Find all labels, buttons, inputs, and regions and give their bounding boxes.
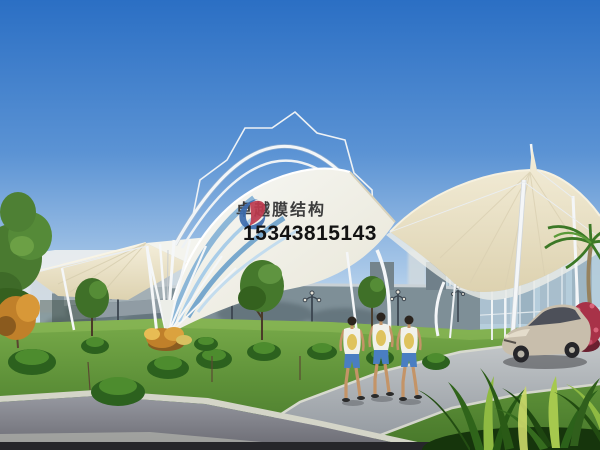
shrub [194, 337, 218, 351]
scene [0, 0, 600, 450]
shrub [196, 349, 232, 369]
shrub [8, 349, 56, 375]
car-headlight [505, 334, 509, 338]
rendering-canvas: 卓越膜结构 15343815143 [0, 0, 600, 450]
